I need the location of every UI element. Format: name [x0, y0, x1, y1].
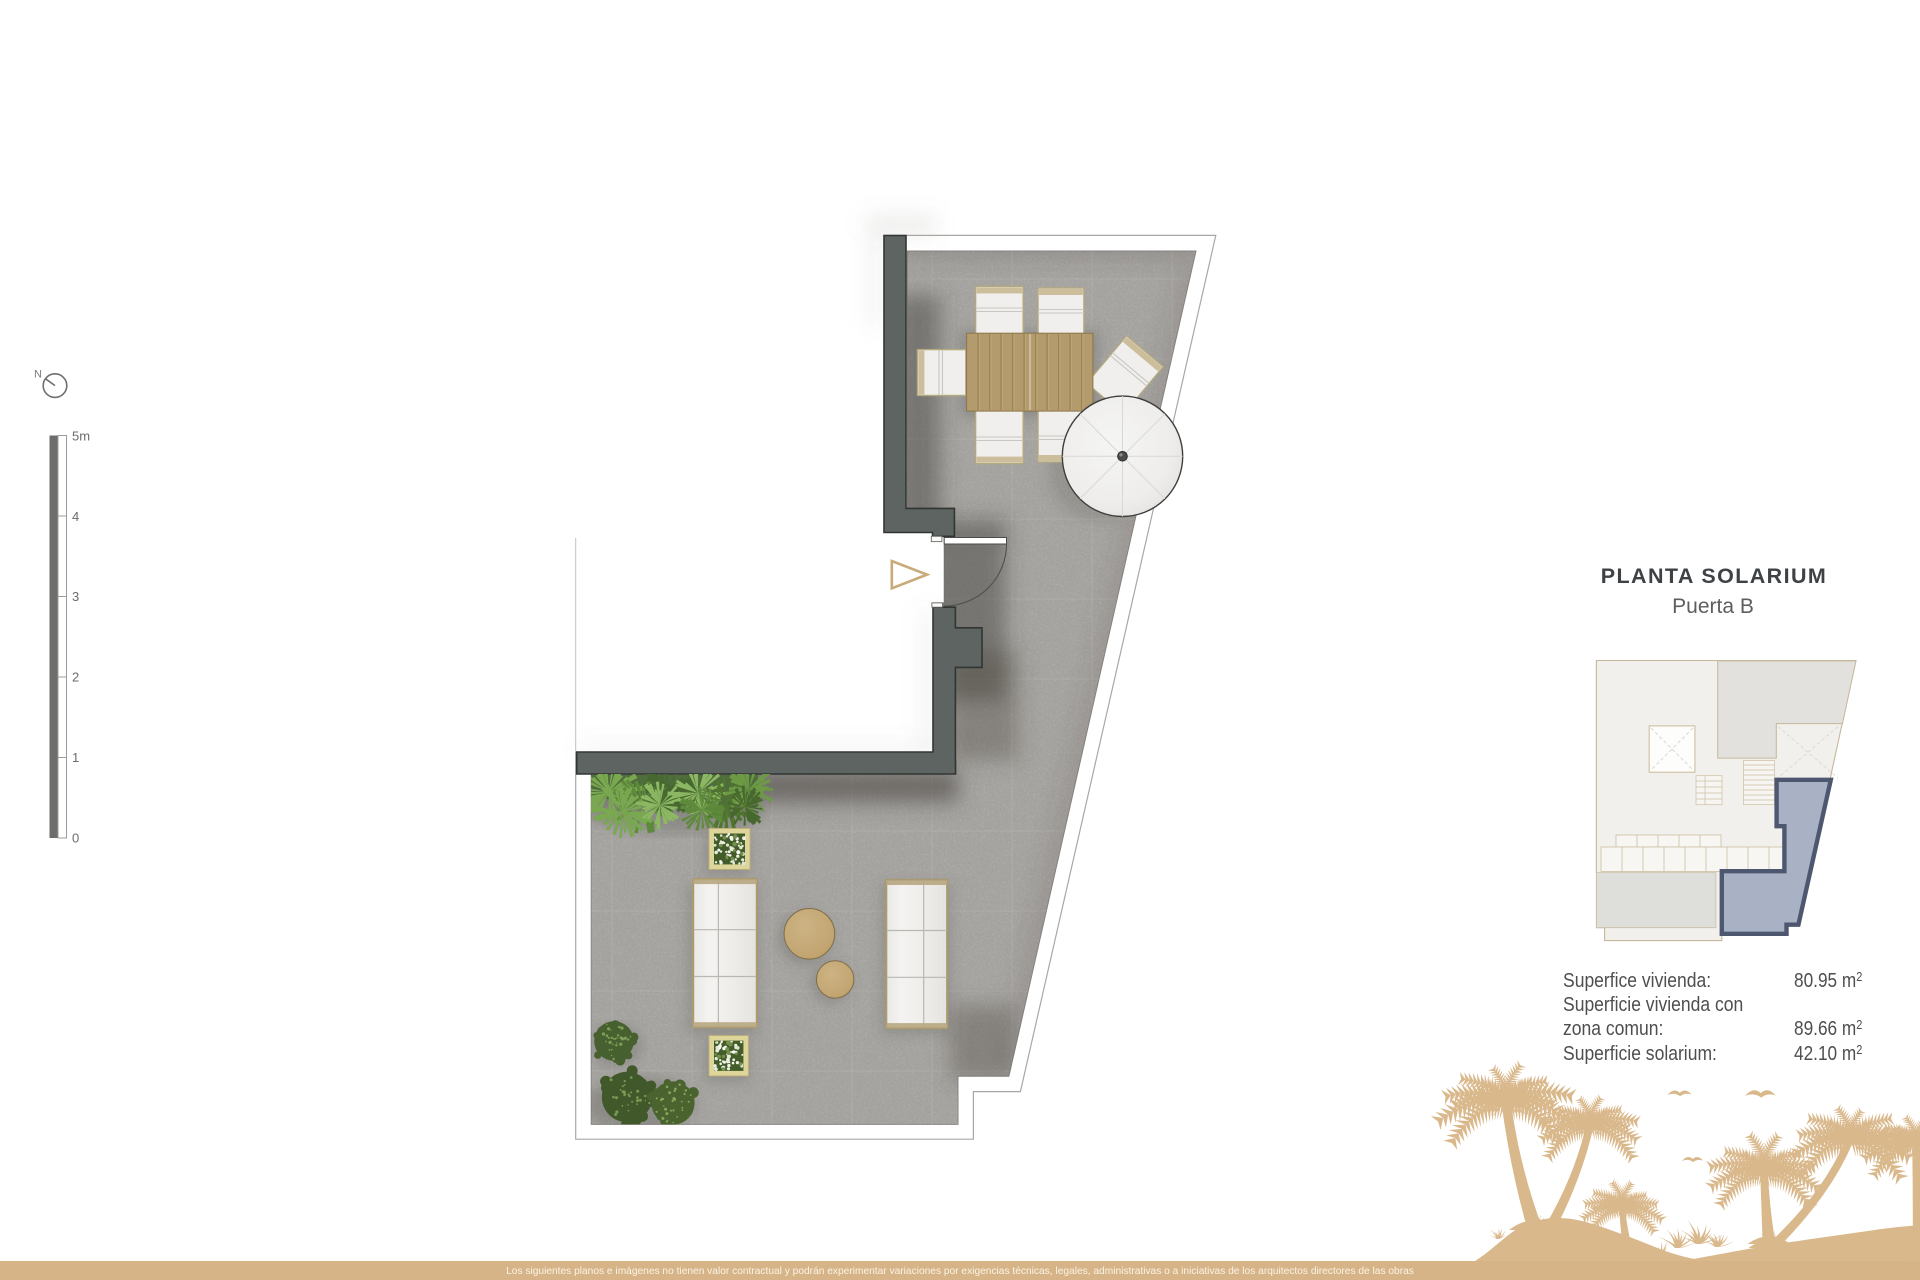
svg-text:4: 4 — [72, 509, 79, 524]
svg-text:2: 2 — [72, 670, 79, 685]
svg-text:3: 3 — [72, 589, 79, 604]
svg-text:1: 1 — [72, 750, 79, 765]
svg-text:0: 0 — [72, 831, 79, 846]
svg-text:N: N — [34, 369, 42, 381]
svg-text:5m: 5m — [72, 430, 90, 444]
